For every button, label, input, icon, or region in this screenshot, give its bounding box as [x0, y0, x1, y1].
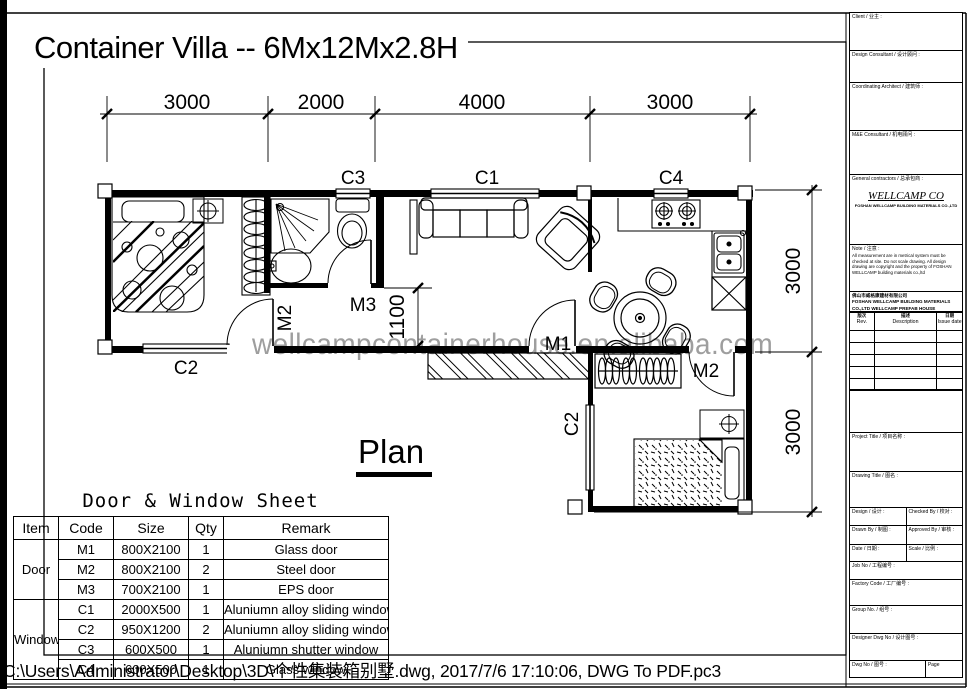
- window-c4: [654, 189, 688, 198]
- sheet-title: Door & Window Sheet: [13, 486, 388, 516]
- col-item: Item: [14, 517, 59, 540]
- window-c1: [431, 189, 539, 198]
- field-project-title: Project Title / 项目名称 :: [850, 433, 962, 472]
- label-c1: C1: [475, 168, 499, 189]
- dim-top-1: 3000: [164, 91, 211, 114]
- toilet: [336, 199, 369, 248]
- table-row: M3 700X2100 1 EPS door: [14, 580, 389, 600]
- field-date-scale: Date / 日期 : Scale / 比例 :: [850, 545, 962, 562]
- revision-row: [850, 367, 962, 379]
- tv-cabinet: [410, 200, 417, 254]
- revision-row: [850, 331, 962, 343]
- bathroom-sink: [268, 249, 311, 283]
- field-design-checked: Design / 设计 : Checked By / 校对 :: [850, 508, 962, 526]
- bed-2: [634, 439, 744, 507]
- armchair: [533, 203, 604, 274]
- drawing-page: 3000 2000 4000 3000 3000 3000 1100 C3 C1…: [0, 0, 973, 693]
- bed-1: [112, 197, 204, 312]
- field-dwg-no-page: Dwg No / 图号 : Page: [850, 661, 962, 677]
- kitchen-sink: [714, 231, 746, 274]
- field-job-no: Job No / 工程编号 :: [850, 562, 962, 580]
- file-path-bar: C:\Users\Administrator\Desktop\3D\个性集装箱别…: [3, 658, 721, 683]
- revision-row: [850, 379, 962, 391]
- field-client: Client / 业主 :: [850, 13, 962, 51]
- window-c2-side: [586, 405, 594, 490]
- col-remark: Remark: [224, 517, 389, 540]
- page-title: Container Villa -- 6Mx12Mx2.8H: [32, 28, 468, 68]
- field-drawn-approved: Drawn By / 制图 : Approved By / 审核 :: [850, 526, 962, 545]
- label-c4: C4: [659, 168, 684, 189]
- sofa: [419, 198, 528, 238]
- shower: [271, 199, 329, 253]
- dim-top-4: 3000: [647, 91, 694, 114]
- plan-caption: Plan: [356, 433, 432, 477]
- revision-header: 版次Rev. 描述Description 日期Issue date: [850, 313, 962, 331]
- dim-top-2: 2000: [298, 91, 345, 114]
- wellcamp-logo: WELLCAMP CO: [850, 190, 962, 202]
- dim-right-1: 3000: [782, 248, 805, 295]
- label-c2-bottom: C2: [174, 358, 198, 379]
- door-window-sheet: Door & Window Sheet Item Code Size Qty R…: [13, 486, 388, 680]
- table-row: M2 800X2100 2 Steel door: [14, 560, 389, 580]
- revision-row: [850, 343, 962, 355]
- field-coordinating-architect: Coordinating Architect / 建筑师 :: [850, 83, 962, 131]
- window-c2-bottom: [143, 344, 229, 353]
- col-qty: Qty: [189, 517, 224, 540]
- address-block: 佛山市威格康建材有限公司 FOSHAN WELLCAMP BUILDING MA…: [850, 292, 962, 313]
- label-m2-bedroom2: M2: [693, 361, 719, 382]
- note-body: All measurement are in metrical system m…: [850, 253, 962, 276]
- door-window-table: Item Code Size Qty Remark Door M1 800X21…: [13, 516, 389, 680]
- dim-right-2: 3000: [782, 409, 805, 456]
- nightstand-light: [700, 410, 744, 438]
- table-row: Window C1 2000X500 1 Aluniumn alloy slid…: [14, 600, 389, 620]
- dim-top-3: 4000: [459, 91, 506, 114]
- table-row: C3 600X500 1 Aluniumn shutter window: [14, 640, 389, 660]
- title-block: Client / 业主 : Design Consultant / 设计顾问 :…: [849, 12, 963, 678]
- item-door: Door: [14, 540, 59, 600]
- col-code: Code: [59, 517, 114, 540]
- field-factory-code: Factory Code / 工厂编号 :: [850, 580, 962, 606]
- revision-row: [850, 355, 962, 367]
- spare-box: [850, 391, 962, 433]
- table-row: C2 950X1200 2 Aluniumn alloy sliding win…: [14, 620, 389, 640]
- label-c3: C3: [341, 168, 365, 189]
- table-row: Door M1 800X2100 1 Glass door: [14, 540, 389, 560]
- field-group-no: Group No. / 组号 :: [850, 606, 962, 634]
- table-header-row: Item Code Size Qty Remark: [14, 517, 389, 540]
- gas-stove: [652, 200, 700, 228]
- field-designer-dwg-no: Designer Dwg No / 设计图号 :: [850, 634, 962, 661]
- note-section: Note / 注意 : All measurement are in metri…: [850, 245, 962, 292]
- label-c2-side: C2: [562, 412, 583, 436]
- window-c3: [336, 189, 370, 198]
- watermark: wellcampcontainerhouse.en.alibaba.com: [252, 328, 773, 362]
- field-me-consultant: M&E Consultant / 机电顾问 :: [850, 131, 962, 175]
- col-size: Size: [114, 517, 189, 540]
- kitchen-cabinet: [712, 277, 746, 310]
- label-m3: M3: [350, 295, 376, 316]
- company-name: FOSHAN WELLCAMP BUILDING MATERIALS CO.,L…: [850, 203, 962, 208]
- field-drawing-title: Drawing Title / 图名 :: [850, 472, 962, 508]
- ceiling-light-1: [193, 199, 223, 223]
- field-general-contractors: General contractors / 总承包商 : WELLCAMP CO…: [850, 175, 962, 245]
- field-design-consultant: Design Consultant / 设计顾问 :: [850, 51, 962, 83]
